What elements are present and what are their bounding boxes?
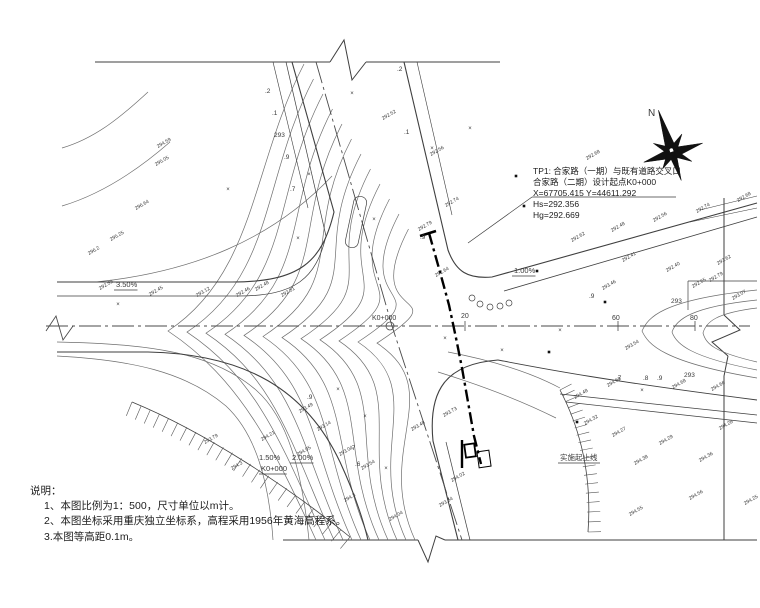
svg-text:294.55: 294.55 xyxy=(628,505,644,518)
svg-text:×: × xyxy=(226,187,230,193)
svg-text:×: × xyxy=(500,348,504,354)
svg-text:294.56: 294.56 xyxy=(688,489,704,502)
tp1-annotation: TP1: 合家路（一期）与既有道路交叉口 合家路（二期）设计起点K0+000 X… xyxy=(533,166,681,221)
svg-text:×: × xyxy=(443,336,447,342)
svg-text:293: 293 xyxy=(671,298,682,305)
design-limit-line xyxy=(420,231,491,468)
break-symbol-top xyxy=(330,40,366,80)
svg-text:294.02: 294.02 xyxy=(450,471,466,484)
break-symbol-right xyxy=(712,315,740,356)
contour-value-labels: .2.1293.9.7.2.1.9293293.7.8.9.9.9.7.6 xyxy=(265,66,695,468)
svg-text:.9: .9 xyxy=(657,375,663,382)
svg-text:.6: .6 xyxy=(355,461,361,468)
svg-text:294.68: 294.68 xyxy=(671,378,687,391)
note-item: 1、本图比例为1：500，尺寸单位以m计。 xyxy=(44,499,346,514)
svg-text:294.59: 294.59 xyxy=(156,137,172,150)
svg-text:293: 293 xyxy=(684,372,695,379)
svg-text:实施起止线: 实施起止线 xyxy=(560,452,598,462)
break-symbol-bottom xyxy=(418,536,445,562)
svg-text:294.29: 294.29 xyxy=(658,434,674,447)
svg-text:292.64: 292.64 xyxy=(434,266,450,279)
svg-text:294.3: 294.3 xyxy=(230,460,244,472)
svg-text:293.48: 293.48 xyxy=(410,420,426,433)
svg-text:1.50%: 1.50% xyxy=(259,453,281,462)
svg-text:×: × xyxy=(350,91,354,97)
svg-text:292.62: 292.62 xyxy=(570,231,586,244)
svg-text:293.14: 293.14 xyxy=(316,420,332,433)
tp1-line: Hs=292.356 xyxy=(533,199,681,210)
svg-text:293.64: 293.64 xyxy=(438,496,454,509)
svg-text:K0+000: K0+000 xyxy=(261,464,287,473)
svg-text:293.54: 293.54 xyxy=(624,339,640,352)
svg-text:80: 80 xyxy=(690,315,698,322)
note-item: 3.本图等高距0.1m。 xyxy=(44,530,346,545)
svg-text:.9: .9 xyxy=(589,293,595,300)
svg-text:293.46: 293.46 xyxy=(601,279,617,292)
svg-text:.2: .2 xyxy=(397,66,403,73)
svg-text:293.54: 293.54 xyxy=(360,459,376,472)
svg-text:292.59: 292.59 xyxy=(98,279,114,292)
svg-text:.8: .8 xyxy=(643,375,649,382)
svg-text:N: N xyxy=(648,108,655,119)
svg-text:1.00%: 1.00% xyxy=(514,266,536,275)
svg-text:292.68: 292.68 xyxy=(736,191,752,204)
notes-header: 说明： xyxy=(30,484,346,499)
svg-text:294.32: 294.32 xyxy=(583,414,599,427)
svg-text:294.25: 294.25 xyxy=(743,494,759,507)
svg-text:294.28: 294.28 xyxy=(718,419,734,432)
svg-text:294.36: 294.36 xyxy=(698,451,714,464)
svg-text:295.05: 295.05 xyxy=(154,155,170,168)
svg-text:.7: .7 xyxy=(350,445,356,452)
svg-text:60: 60 xyxy=(612,315,620,322)
svg-text:293.07: 293.07 xyxy=(731,289,747,302)
svg-text:292.46: 292.46 xyxy=(235,286,251,299)
svg-text:.7: .7 xyxy=(616,375,622,382)
svg-text:×: × xyxy=(116,302,120,308)
svg-text:293.12: 293.12 xyxy=(195,286,211,299)
break-symbol-left xyxy=(46,316,73,340)
svg-text:×: × xyxy=(640,388,644,394)
svg-text:293.73: 293.73 xyxy=(442,406,458,419)
svg-text:×: × xyxy=(372,217,376,223)
tp1-line: X=67705.415 Y=44611.292 xyxy=(533,188,681,199)
svg-text:294.27: 294.27 xyxy=(611,426,627,439)
svg-text:.7: .7 xyxy=(290,186,296,193)
svg-text:296.2: 296.2 xyxy=(87,245,101,257)
svg-text:292.41: 292.41 xyxy=(621,251,637,264)
svg-text:292.51: 292.51 xyxy=(280,286,296,299)
svg-text:2.00%: 2.00% xyxy=(292,453,314,462)
svg-text:K0+000: K0+000 xyxy=(372,315,396,322)
svg-text:.2: .2 xyxy=(265,88,271,95)
svg-text:×: × xyxy=(384,466,388,472)
tp1-line: 合家路（二期）设计起点K0+000 xyxy=(533,177,681,188)
svg-text:20: 20 xyxy=(461,313,469,320)
note-item: 2、本图坐标采用重庆独立坐标系，高程采用1956年黄海高程系。 xyxy=(44,514,346,529)
svg-text:294.21: 294.21 xyxy=(260,430,276,443)
centerlines xyxy=(46,62,750,540)
svg-text:×: × xyxy=(468,126,472,132)
svg-text:293: 293 xyxy=(274,132,285,139)
svg-text:.1: .1 xyxy=(404,129,410,136)
svg-text:×: × xyxy=(296,236,300,242)
svg-text:.9: .9 xyxy=(307,394,313,401)
svg-text:×: × xyxy=(558,328,562,334)
svg-text:292.68: 292.68 xyxy=(585,149,601,162)
tp1-line: TP1: 合家路（一期）与既有道路交叉口 xyxy=(533,166,681,177)
svg-text:292.65: 292.65 xyxy=(691,277,707,290)
svg-text:292.79: 292.79 xyxy=(417,220,433,233)
drawing-stage: ××××××××××××××× 294.59295.05296.64295.25… xyxy=(0,0,760,608)
svg-text:292.40: 292.40 xyxy=(665,261,681,274)
svg-text:292.52: 292.52 xyxy=(381,109,397,122)
tp1-line: Hg=292.669 xyxy=(533,210,681,221)
svg-text:.9: .9 xyxy=(420,234,426,241)
svg-text:.9: .9 xyxy=(284,154,290,161)
svg-text:×: × xyxy=(363,414,367,420)
svg-text:294.04: 294.04 xyxy=(388,510,404,523)
svg-text:3.50%: 3.50% xyxy=(116,280,138,289)
svg-text:292.79: 292.79 xyxy=(708,271,724,284)
svg-text:294.38: 294.38 xyxy=(633,454,649,467)
svg-text:.1: .1 xyxy=(272,110,278,117)
svg-text:292.74: 292.74 xyxy=(444,196,460,209)
notes-block: 说明： 1、本图比例为1：500，尺寸单位以m计。 2、本图坐标采用重庆独立坐标… xyxy=(30,484,346,545)
svg-text:292.74: 292.74 xyxy=(695,202,711,215)
svg-text:293.79: 293.79 xyxy=(203,433,219,446)
svg-text:294.48: 294.48 xyxy=(573,388,589,401)
svg-text:×: × xyxy=(336,387,340,393)
svg-text:296.64: 296.64 xyxy=(134,199,150,212)
structure-box xyxy=(464,443,476,457)
svg-text:295.25: 295.25 xyxy=(109,230,125,243)
tp1-leader xyxy=(468,197,532,243)
svg-text:×: × xyxy=(307,172,311,178)
svg-text:292.48: 292.48 xyxy=(610,221,626,234)
